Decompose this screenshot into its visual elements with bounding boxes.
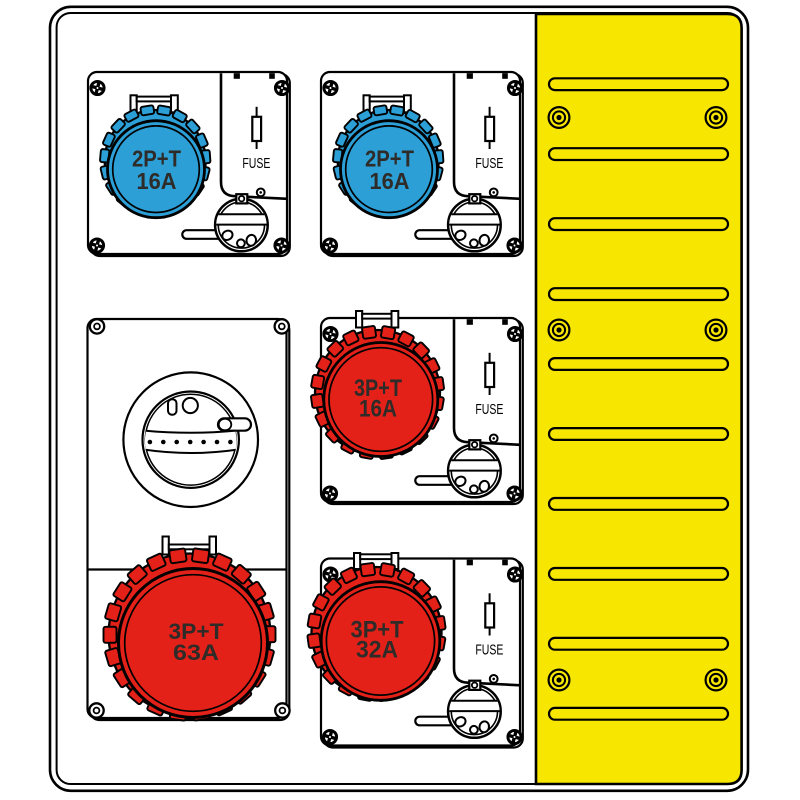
svg-text:FUSE: FUSE: [242, 156, 270, 172]
svg-text:FUSE: FUSE: [475, 642, 503, 658]
svg-text:63A: 63A: [173, 640, 219, 665]
svg-text:16A: 16A: [137, 168, 177, 194]
svg-text:FUSE: FUSE: [475, 156, 503, 172]
svg-text:FUSE: FUSE: [475, 402, 503, 418]
svg-text:16A: 16A: [359, 396, 397, 423]
svg-text:16A: 16A: [370, 168, 410, 194]
svg-text:32A: 32A: [356, 637, 398, 664]
